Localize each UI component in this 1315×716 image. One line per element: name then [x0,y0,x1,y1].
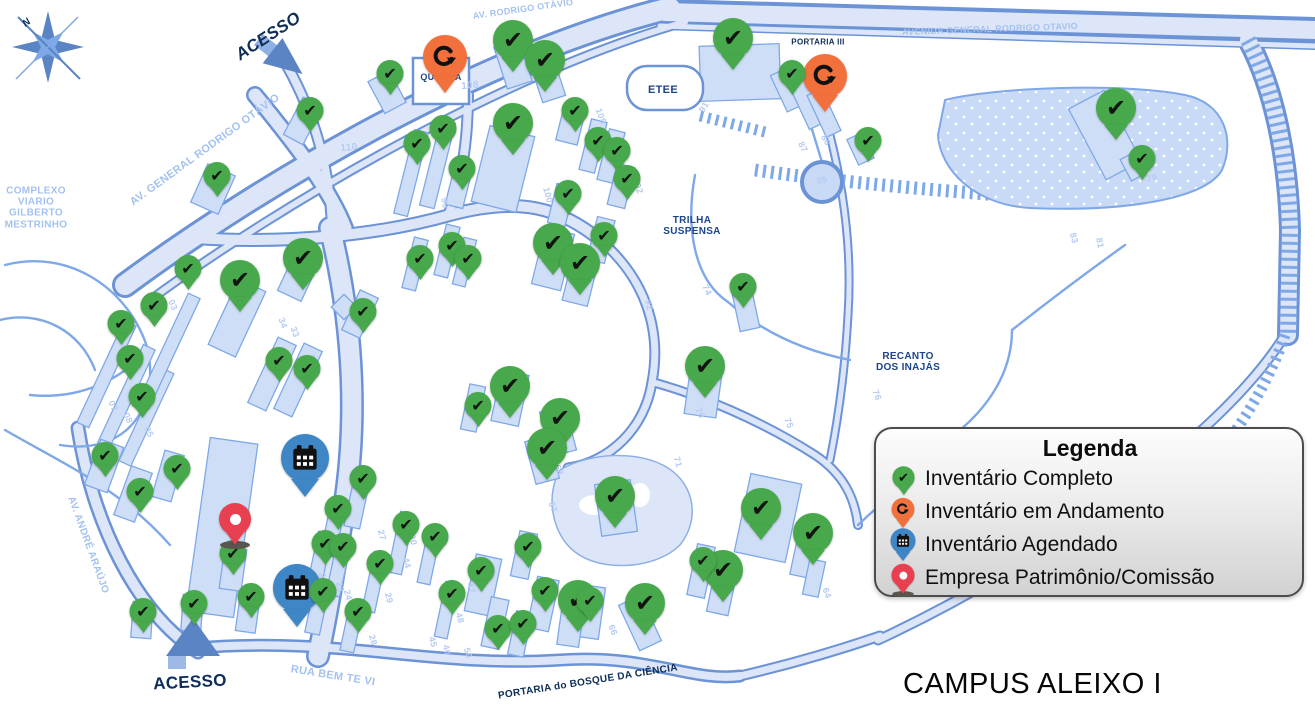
marker-complete[interactable]: ✔ [1129,145,1156,180]
marker-complete[interactable]: ✔ [855,127,882,162]
check-icon: ✔ [751,496,771,520]
check-icon: ✔ [136,604,149,620]
marker-complete[interactable]: ✔ [690,547,717,582]
marker-complete[interactable]: ✔ [730,273,757,308]
check-icon: ✔ [210,168,223,184]
legend-title: Legenda [888,435,1292,462]
legend-item-complete: ✔ Inventário Completo [888,462,1292,495]
check-icon: ✔ [147,298,160,314]
check-icon: ✔ [293,246,313,270]
campus-map-screen: NACESSOAV. GENERAL RODRIGO OTÁVIOAV. ROD… [0,0,1315,716]
check-icon: ✔ [461,251,474,267]
legend-item-label: Inventário Agendado [925,533,1118,557]
check-icon: ✔ [303,103,316,119]
company-commission-pin-icon [888,561,918,594]
marker-complete[interactable]: ✔ [407,245,434,280]
marker-complete[interactable]: ✔ [422,523,449,558]
marker-complete[interactable]: ✔ [465,392,492,427]
legend-item-scheduled: Inventário Agendado [888,528,1292,561]
marker-complete[interactable]: ✔ [468,557,495,592]
marker-complete[interactable]: ✔ [377,60,404,95]
check-icon: ✔ [455,161,468,177]
marker-complete[interactable]: ✔ [591,222,618,257]
check-icon: ✔ [597,228,610,244]
marker-complete[interactable]: ✔ [350,298,377,333]
marker-complete[interactable]: ✔ [297,97,324,132]
marker-complete[interactable]: ✔ [127,478,154,513]
marker-complete[interactable]: ✔ [108,310,135,345]
check-icon: ✔ [230,268,250,292]
check-icon: ✔ [605,484,625,508]
check-icon: ✔ [135,389,148,405]
legend-item-in-progress: Inventário em Andamento [888,495,1292,528]
marker-complete[interactable]: ✔ [204,162,231,197]
marker-complete[interactable]: ✔ [130,598,157,633]
marker-complete[interactable]: ✔ [577,587,604,622]
check-icon: ✔ [471,398,484,414]
legend-item-label: Inventário Completo [925,467,1113,491]
marker-complete[interactable]: ✔ [330,533,357,568]
marker-complete[interactable]: ✔ [181,590,208,625]
calendar-icon [283,574,311,602]
check-icon: ✔ [272,353,285,369]
check-icon: ✔ [537,436,557,460]
check-icon: ✔ [620,171,633,187]
marker-complete[interactable]: ✔ [713,18,753,70]
calendar-icon [291,444,319,472]
check-icon: ✔ [170,461,183,477]
check-icon: ✔ [351,604,364,620]
check-icon: ✔ [331,501,344,517]
check-icon: ✔ [568,103,581,119]
check-icon: ✔ [436,121,449,137]
inventory-scheduled-pin-icon [888,528,918,561]
marker-complete[interactable]: ✔ [455,245,482,280]
check-icon: ✔ [550,406,570,430]
inventory-complete-pin-icon: ✔ [888,462,918,495]
check-icon: ✔ [1135,151,1148,167]
marker-complete[interactable]: ✔ [220,260,260,312]
check-icon: ✔ [516,616,529,632]
check-icon: ✔ [521,539,534,555]
check-icon: ✔ [1106,96,1126,120]
check-icon: ✔ [244,589,257,605]
check-icon: ✔ [736,279,749,295]
marker-complete[interactable]: ✔ [532,577,559,612]
check-icon: ✔ [300,361,313,377]
marker-complete[interactable]: ✔ [1096,88,1136,140]
check-icon: ✔ [316,584,329,600]
marker-complete[interactable]: ✔ [345,598,372,633]
marker-complete[interactable]: ✔ [283,238,323,290]
check-icon: ✔ [635,591,655,615]
marker-complete[interactable]: ✔ [175,255,202,290]
marker-complete[interactable]: ✔ [525,40,565,92]
marker-complete[interactable]: ✔ [310,578,337,613]
check-icon: ✔ [610,143,623,159]
pin-hole [230,514,241,525]
check-icon: ✔ [535,48,555,72]
marker-complete[interactable]: ✔ [404,130,431,165]
marker-complete[interactable]: ✔ [129,383,156,418]
check-icon: ✔ [474,563,487,579]
check-icon: ✔ [410,136,423,152]
check-icon: ✔ [696,553,709,569]
marker-complete[interactable]: ✔ [527,428,567,480]
check-icon: ✔ [399,517,412,533]
check-icon: ✔ [373,556,386,572]
check-icon: ✔ [803,521,823,545]
refresh-icon [811,62,839,90]
refresh-icon [431,43,459,71]
marker-complete[interactable]: ✔ [117,345,144,380]
pin-hole [899,571,907,579]
marker-complete[interactable]: ✔ [367,550,394,585]
marker-complete[interactable]: ✔ [430,115,457,150]
marker-complete[interactable]: ✔ [490,366,530,418]
marker-in-progress[interactable] [423,35,467,93]
marker-in-progress[interactable] [803,54,847,112]
check-icon: ✔ [445,586,458,602]
marker-complete[interactable]: ✔ [141,292,168,327]
check-icon: ✔ [583,593,596,609]
check-icon: ✔ [491,621,504,637]
marker-complete[interactable]: ✔ [595,476,635,528]
marker-complete[interactable]: ✔ [449,155,476,190]
check-icon: ✔ [356,304,369,320]
marker-complete[interactable]: ✔ [779,60,806,95]
check-icon: ✔ [123,351,136,367]
legend-item-company: Empresa Patrimônio/Comissão [888,561,1292,594]
check-icon: ✔ [695,354,715,378]
check-icon: ✔ [413,251,426,267]
marker-complete[interactable]: ✔ [92,442,119,477]
legend-item-label: Empresa Patrimônio/Comissão [925,566,1214,590]
marker-complete[interactable]: ✔ [164,455,191,490]
marker-scheduled[interactable] [281,434,329,497]
check-icon: ✔ [723,26,743,50]
check-icon: ✔ [861,133,874,149]
marker-complete[interactable]: ✔ [325,495,352,530]
marker-complete[interactable]: ✔ [555,180,582,215]
marker-complete[interactable]: ✔ [625,583,665,635]
marker-complete[interactable]: ✔ [393,511,420,546]
check-icon: ✔ [898,471,909,484]
check-icon: ✔ [114,316,127,332]
legend-box: Legenda ✔ Inventário Completo Inventário… [874,427,1304,597]
marker-complete[interactable]: ✔ [614,165,641,200]
marker-complete[interactable]: ✔ [238,583,265,618]
check-icon: ✔ [538,583,551,599]
check-icon: ✔ [133,484,146,500]
marker-complete[interactable]: ✔ [350,465,377,500]
marker-complete[interactable]: ✔ [515,533,542,568]
marker-complete[interactable]: ✔ [266,347,293,382]
marker-company[interactable] [219,503,251,545]
marker-complete[interactable]: ✔ [493,103,533,155]
check-icon: ✔ [503,111,523,135]
campus-title: CAMPUS ALEIXO I [890,668,1175,701]
marker-complete[interactable]: ✔ [741,488,781,540]
check-icon: ✔ [503,28,523,52]
check-icon: ✔ [98,448,111,464]
calendar-icon [896,533,911,548]
marker-complete[interactable]: ✔ [510,610,537,645]
marker-complete[interactable]: ✔ [793,513,833,565]
refresh-icon [896,502,911,517]
compass-rose [12,11,84,83]
check-icon: ✔ [181,261,194,277]
legend-item-label: Inventário em Andamento [925,500,1164,524]
check-icon: ✔ [785,66,798,82]
check-icon: ✔ [500,374,520,398]
check-icon: ✔ [570,251,590,275]
marker-complete[interactable]: ✔ [439,580,466,615]
check-icon: ✔ [187,596,200,612]
marker-complete[interactable]: ✔ [485,615,512,650]
inventory-in-progress-pin-icon [888,495,918,528]
check-icon: ✔ [561,186,574,202]
marker-complete[interactable]: ✔ [685,346,725,398]
check-icon: ✔ [336,539,349,555]
marker-complete[interactable]: ✔ [294,355,321,390]
check-icon: ✔ [428,529,441,545]
check-icon: ✔ [356,471,369,487]
check-icon: ✔ [383,66,396,82]
